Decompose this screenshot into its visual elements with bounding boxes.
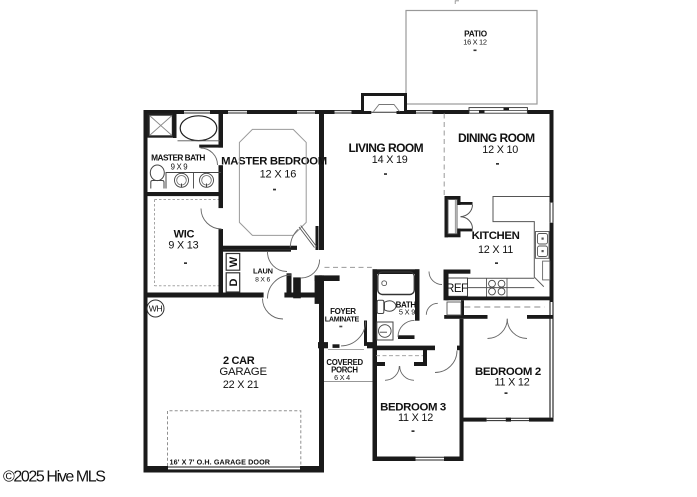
svg-text:LAMINATE: LAMINATE (325, 314, 360, 323)
svg-text:GARAGE: GARAGE (219, 366, 267, 378)
svg-text:14 X 19: 14 X 19 (372, 154, 408, 166)
svg-text:16 X 12: 16 X 12 (463, 38, 487, 47)
svg-text:KITCHEN: KITCHEN (472, 230, 520, 242)
svg-text:DINING ROOM: DINING ROOM (458, 131, 535, 145)
svg-text:22 X 21: 22 X 21 (223, 379, 259, 391)
svg-text:D: D (228, 278, 240, 286)
svg-text:LIVING ROOM: LIVING ROOM (348, 141, 423, 155)
svg-text:©2025 Hive MLS: ©2025 Hive MLS (3, 469, 105, 486)
svg-text:MASTER BEDROOM: MASTER BEDROOM (221, 156, 327, 168)
svg-text:12 X 16: 12 X 16 (260, 169, 297, 181)
svg-text:12 X 10: 12 X 10 (482, 144, 518, 156)
svg-text:MASTER BATH: MASTER BATH (151, 152, 205, 162)
svg-text:12 X 11: 12 X 11 (478, 244, 513, 256)
svg-text:9 X 13: 9 X 13 (168, 240, 198, 252)
svg-text:6 X 4: 6 X 4 (334, 373, 350, 382)
svg-text:REF: REF (446, 282, 468, 295)
svg-text:5 X 9: 5 X 9 (399, 308, 415, 317)
svg-text:9 X 9: 9 X 9 (171, 162, 188, 171)
svg-text:LAUN: LAUN (253, 267, 273, 276)
svg-text:W: W (228, 256, 240, 267)
svg-text:8 X 6: 8 X 6 (255, 276, 270, 283)
svg-text:11 X 12: 11 X 12 (398, 412, 433, 424)
svg-text:16' X 7' O.H. GARAGE DOOR: 16' X 7' O.H. GARAGE DOOR (170, 457, 271, 466)
svg-text:11 X 12: 11 X 12 (494, 377, 529, 389)
svg-text:WH: WH (149, 304, 163, 314)
